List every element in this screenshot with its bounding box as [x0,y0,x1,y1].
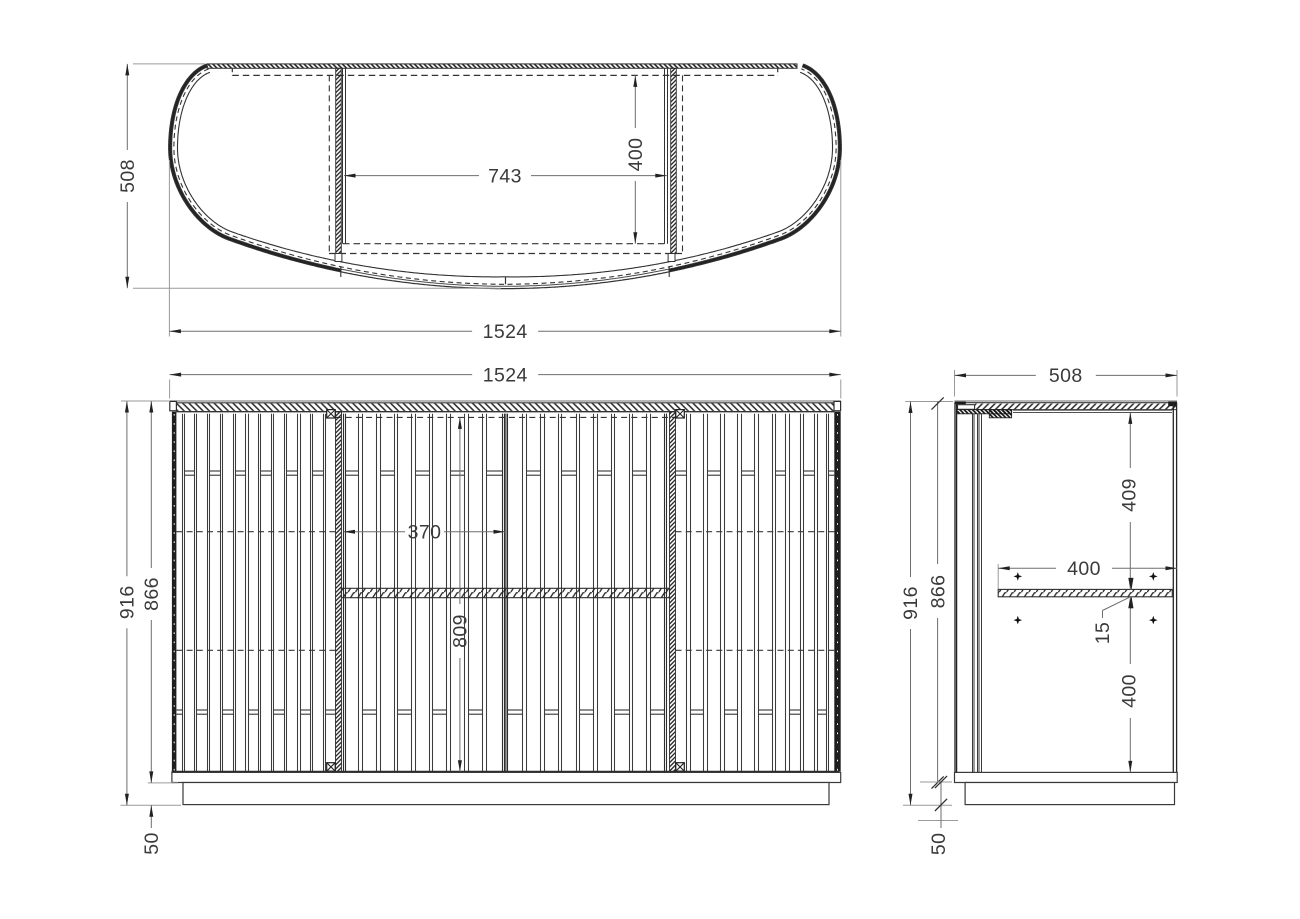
svg-text:1524: 1524 [483,364,528,386]
svg-text:916: 916 [117,585,139,619]
svg-text:400: 400 [1067,558,1101,580]
svg-text:50: 50 [141,832,163,855]
svg-text:809: 809 [450,614,472,648]
svg-text:409: 409 [1119,478,1141,512]
svg-text:866: 866 [927,575,949,609]
svg-text:15: 15 [1092,622,1114,645]
svg-text:370: 370 [408,521,442,543]
svg-text:508: 508 [1049,365,1083,387]
svg-text:50: 50 [928,833,950,856]
svg-text:743: 743 [488,165,522,187]
svg-text:400: 400 [1119,674,1141,708]
svg-text:916: 916 [900,586,922,620]
svg-text:508: 508 [117,159,139,193]
svg-text:866: 866 [141,577,163,611]
svg-text:400: 400 [625,138,647,172]
svg-text:1524: 1524 [483,321,528,343]
